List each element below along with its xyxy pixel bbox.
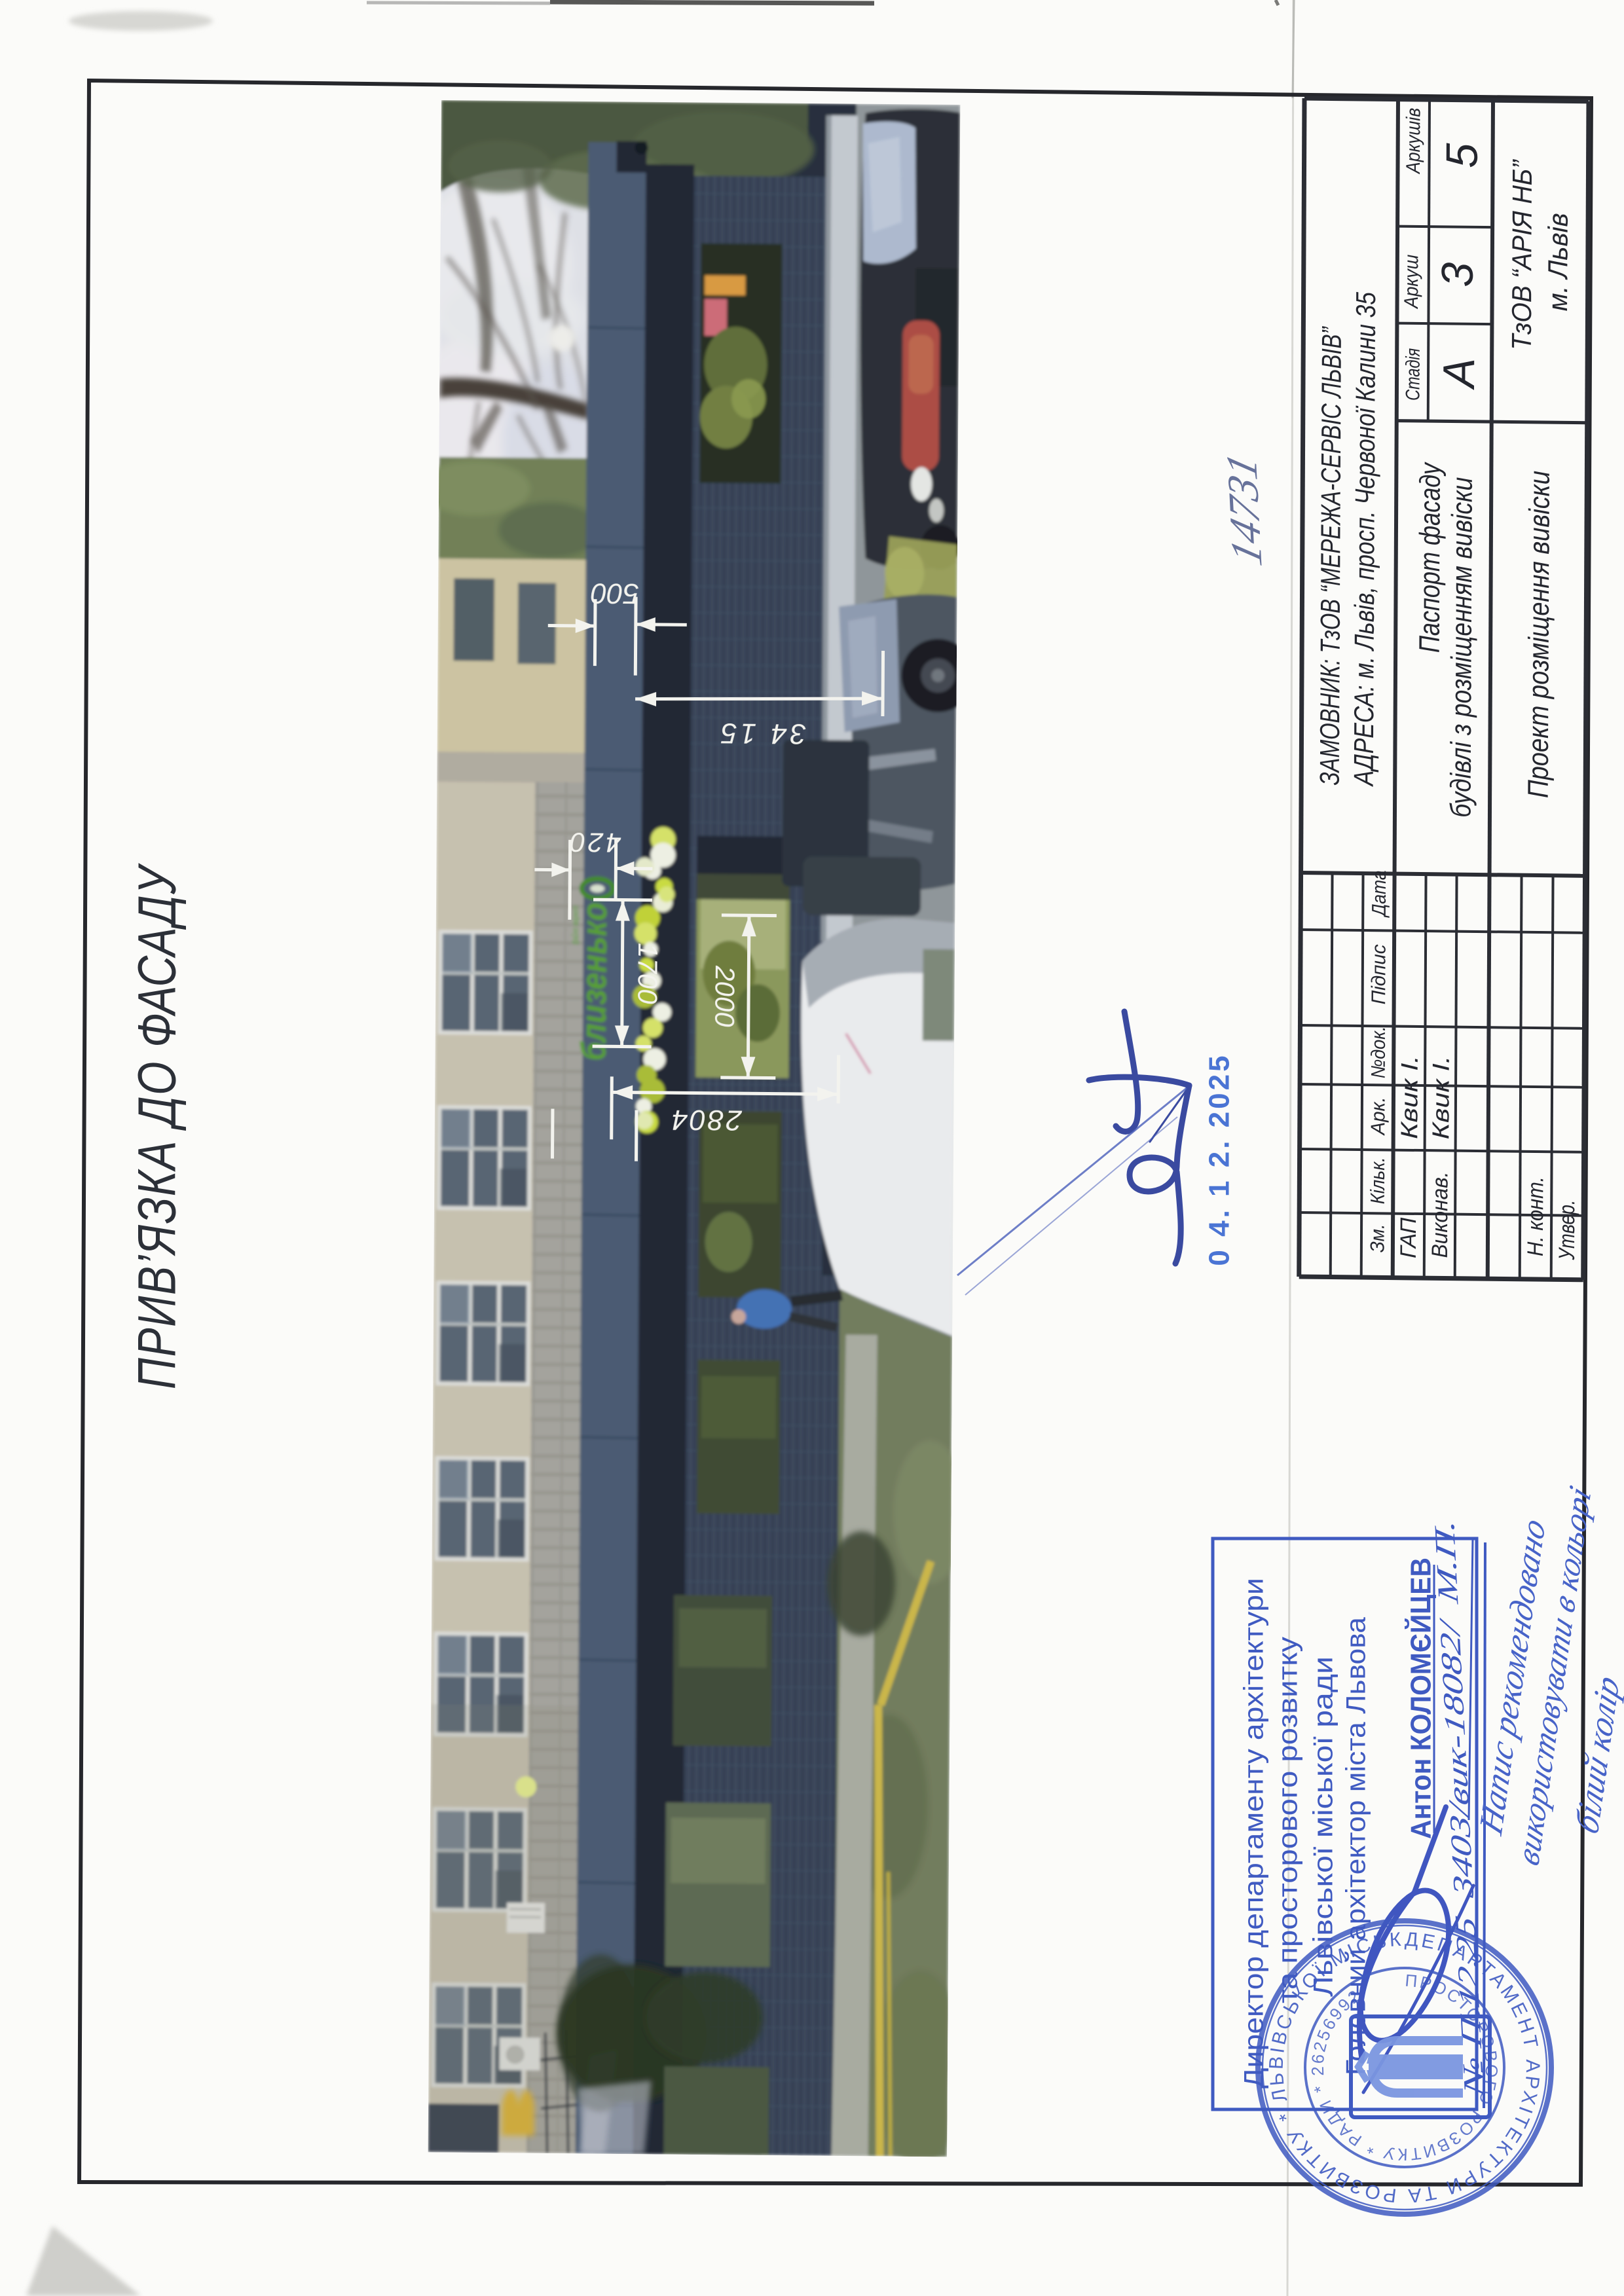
svg-text:Виконав.: Виконав. [1428, 1171, 1453, 1258]
svg-text:ПРИВ’ЯЗКА ДО ФАСАДУ: ПРИВ’ЯЗКА ДО ФАСАДУ [128, 863, 187, 1389]
svg-text:0 4. 1 2. 2025: 0 4. 1 2. 2025 [1204, 1053, 1236, 1266]
svg-text:ГАП: ГАП [1396, 1217, 1421, 1258]
svg-text:Утвер.: Утвер. [1555, 1199, 1579, 1260]
svg-text:Директор департаменту архітект: Директор департаменту архітектури [1238, 1578, 1269, 2088]
svg-text:2000: 2000 [709, 965, 741, 1027]
svg-text:14731: 14731 [1217, 449, 1272, 570]
svg-text:Аркушів: Аркушів [1403, 108, 1424, 175]
svg-text:Зм.: Зм. [1367, 1224, 1388, 1252]
svg-text:Паспорт фасаду: Паспорт фасаду [1414, 461, 1447, 653]
svg-text:та просторового розвитку: та просторового розвитку [1272, 1637, 1303, 2003]
svg-text:420: 420 [567, 827, 621, 858]
svg-text:Аркуш: Аркуш [1401, 255, 1422, 310]
svg-text:Квик І.: Квик І. [1395, 1055, 1423, 1139]
svg-text:500: 500 [591, 577, 639, 610]
svg-text:ТзОВ “АРІЯ НБ”: ТзОВ “АРІЯ НБ” [1506, 159, 1538, 350]
svg-text:№док.: №док. [1368, 1026, 1390, 1078]
svg-text:Арк.: Арк. [1367, 1097, 1389, 1136]
svg-text:1700: 1700 [633, 943, 664, 1004]
svg-text:3: 3 [1433, 262, 1483, 287]
svg-text:Н. конт.: Н. конт. [1523, 1176, 1549, 1256]
svg-text:Проект розміщення вивіски: Проект розміщення вивіски [1522, 471, 1556, 799]
svg-text:Кільк.: Кільк. [1367, 1157, 1389, 1204]
svg-text:ЗАМОВНИК: ТзОВ “МЕРЕЖА-СЕРВІС: ЗАМОВНИК: ТзОВ “МЕРЕЖА-СЕРВІС ЛЬВІВ” [1314, 326, 1347, 786]
svg-text:34 15: 34 15 [718, 717, 806, 750]
svg-text:Квик І.: Квик І. [1427, 1055, 1454, 1139]
svg-text:АДРЕСА: м. Львів, просп. Черво: АДРЕСА: м. Львів, просп. Червоної Калини… [1348, 291, 1381, 788]
svg-text:Стадія: Стадія [1402, 348, 1424, 401]
svg-text:А: А [1434, 358, 1484, 391]
svg-text:м. Львів: м. Львів [1542, 213, 1574, 312]
svg-text:5: 5 [1437, 143, 1487, 168]
svg-text:2804: 2804 [670, 1104, 743, 1137]
svg-text:Дата: Дата [1369, 870, 1390, 918]
svg-text:Підпис: Підпис [1368, 944, 1390, 1004]
svg-text:будівлі з розміщенням вивіски: будівлі з розміщенням вивіски [1445, 477, 1478, 818]
